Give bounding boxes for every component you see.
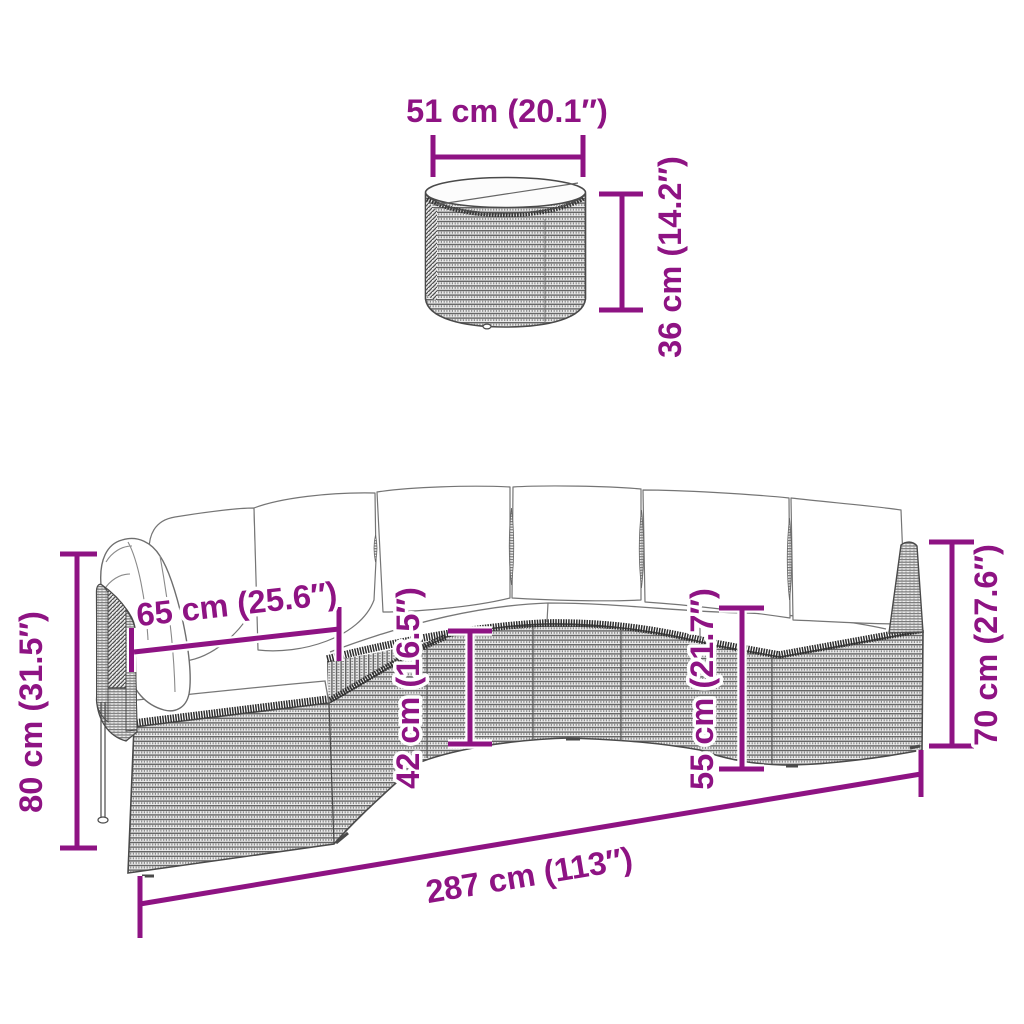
svg-text:70 cm (27.6″): 70 cm (27.6″) — [968, 544, 1004, 746]
svg-text:80 cm (31.5″): 80 cm (31.5″) — [13, 611, 49, 813]
svg-text:42 cm (16.5″): 42 cm (16.5″) — [390, 587, 426, 789]
svg-text:51 cm (20.1″): 51 cm (20.1″) — [406, 93, 608, 129]
svg-text:55 cm (21.7″): 55 cm (21.7″) — [684, 588, 720, 790]
svg-text:36 cm (14.2″): 36 cm (14.2″) — [652, 156, 688, 358]
